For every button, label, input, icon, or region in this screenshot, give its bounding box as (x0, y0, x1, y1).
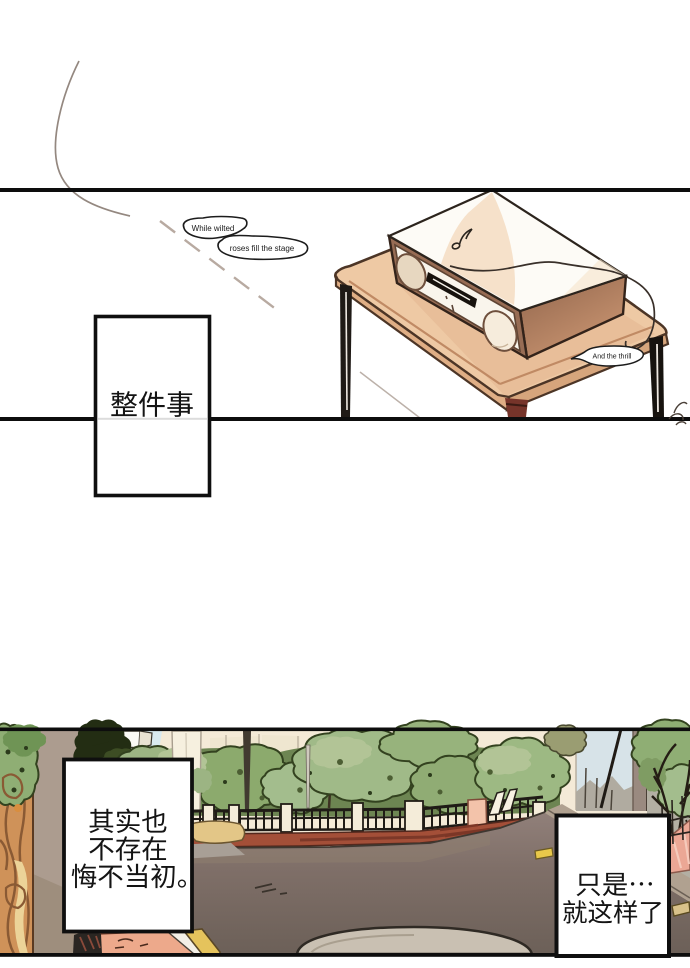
svg-text:And the thrill: And the thrill (593, 354, 632, 361)
svg-text:While wilted: While wilted (192, 224, 235, 233)
svg-text:roses fill the stage: roses fill the stage (230, 244, 295, 253)
